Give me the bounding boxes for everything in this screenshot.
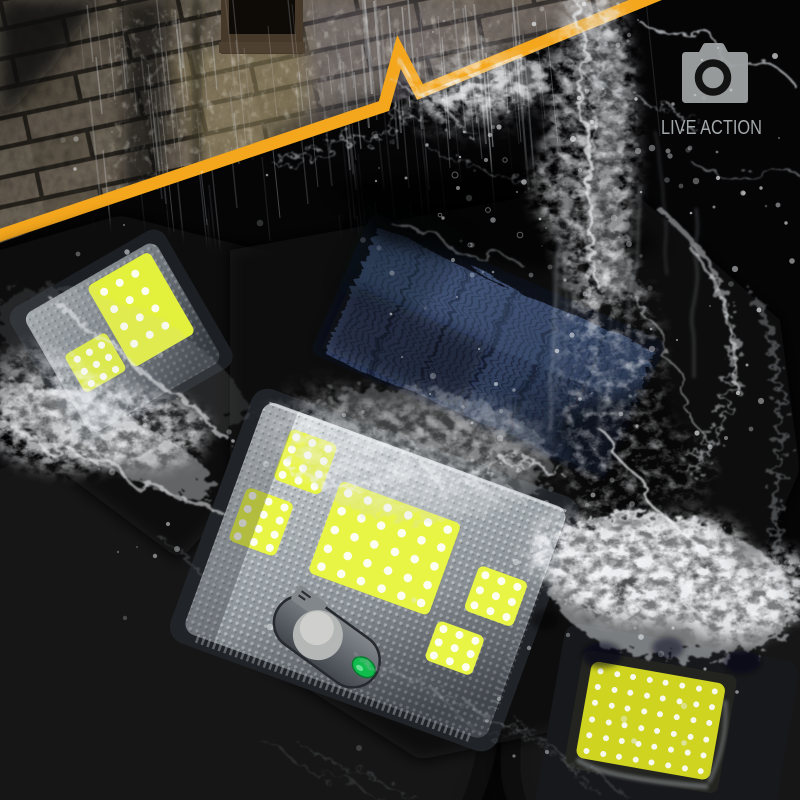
svg-text:LIVE ACTION: LIVE ACTION [661,116,762,139]
